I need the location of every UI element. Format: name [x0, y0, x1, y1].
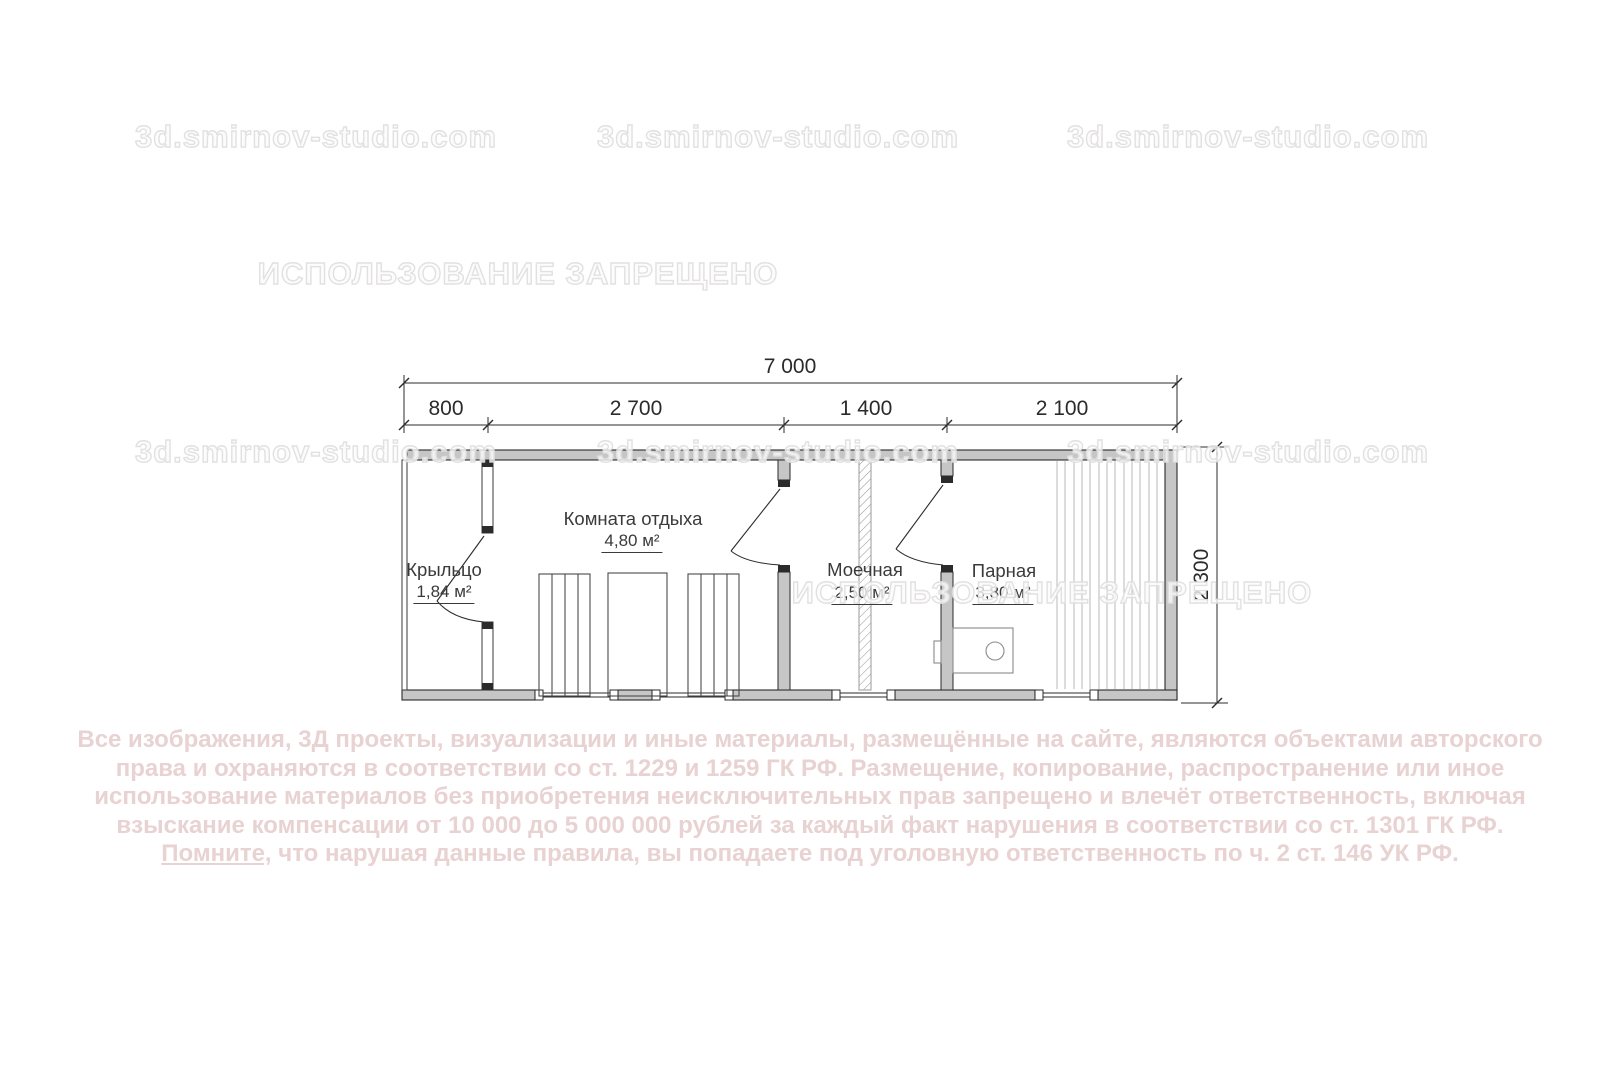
copyright-line-rest: что нарушая данные правила, вы попадаете…: [272, 840, 1459, 867]
door-rest-wash: [731, 489, 780, 565]
dim-segment-4: 2 100: [1036, 397, 1089, 421]
partition-porch-rest: [482, 460, 493, 690]
partition-rest-wash: [778, 460, 790, 690]
room-area-porch: 1,84 м²: [413, 582, 474, 604]
page: 7 000 800 2 700 1 400 2 100 2 300 Крыльц…: [0, 0, 1620, 1080]
copyright-line: Все изображения, 3Д проекты, визуализаци…: [70, 726, 1550, 755]
dim-segment-2: 2 700: [610, 397, 663, 421]
deck-boards: [1057, 461, 1157, 689]
door-wash-steam: [896, 485, 943, 565]
room-label-rest-room: Комната отдыха: [564, 508, 703, 530]
watermark-forbidden: ИСПОЛЬЗОВАНИЕ ЗАПРЕЩЕНО: [258, 256, 779, 292]
watermark-site: 3d.smirnov-studio.com: [1067, 119, 1429, 155]
copyright-line: взыскание компенсации от 10 000 до 5 000…: [70, 812, 1550, 841]
room-area-wash-room: 2,50 м²: [831, 583, 892, 605]
dim-segment-3: 1 400: [840, 397, 893, 421]
dim-total-width: 7 000: [764, 355, 817, 379]
room-label-porch: Крыльцо: [406, 559, 481, 581]
copyright-notice: Все изображения, 3Д проекты, визуализаци…: [70, 726, 1550, 869]
room-label-wash-room: Моечная: [827, 559, 903, 581]
room-area-steam-room: 3,80 м²: [972, 583, 1033, 605]
room-area-rest-room: 4,80 м²: [601, 531, 662, 553]
copyright-line: права и охраняются в соответствии со ст.…: [70, 755, 1550, 784]
dim-height: 2 300: [1190, 549, 1214, 602]
partition-wash-steam: [941, 460, 953, 690]
benches: [539, 573, 739, 696]
floor-plan-drawing: [380, 340, 1260, 730]
room-label-steam-room: Парная: [972, 560, 1036, 582]
watermark-site: 3d.smirnov-studio.com: [597, 119, 959, 155]
copyright-line: Помните, что нарушая данные правила, вы …: [70, 840, 1550, 869]
dimension-lines: [399, 375, 1228, 708]
copyright-underlined: Помните,: [161, 840, 271, 867]
dim-segment-1: 800: [428, 397, 463, 421]
copyright-line: использование материалов без приобретени…: [70, 783, 1550, 812]
watermark-site: 3d.smirnov-studio.com: [135, 119, 497, 155]
